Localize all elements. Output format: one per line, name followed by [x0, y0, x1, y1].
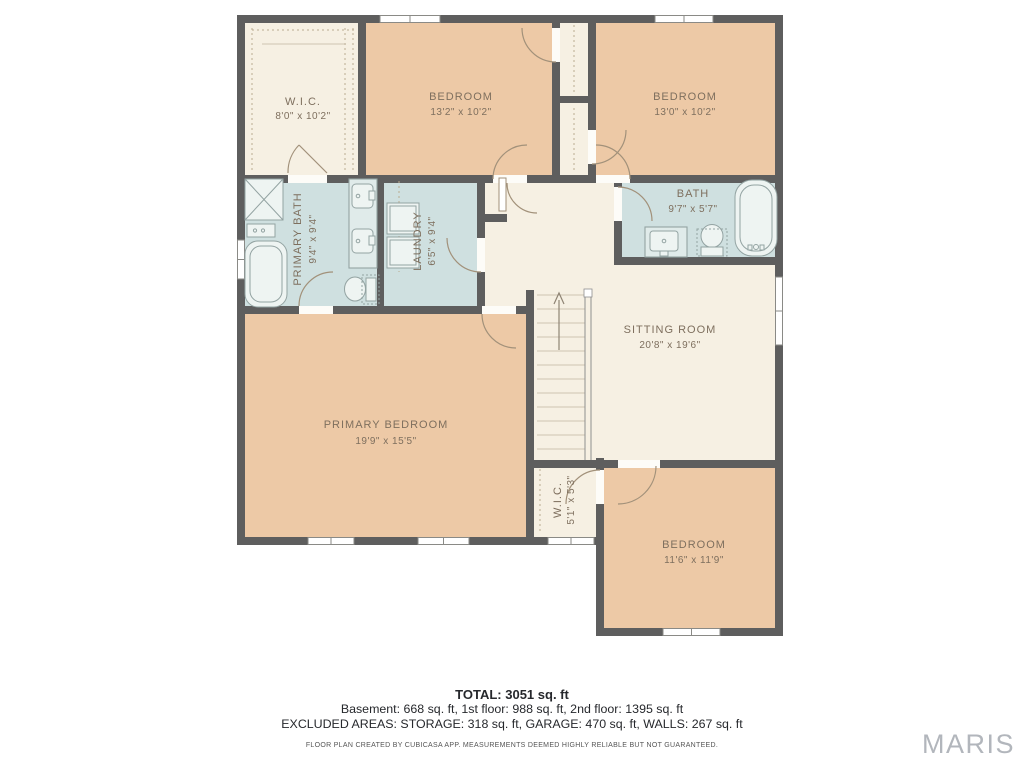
room-name: LAUNDRY [412, 211, 424, 270]
room-name: BEDROOM [653, 91, 717, 103]
window [776, 277, 783, 345]
room-dims: 9'4" x 9'4" [308, 214, 319, 263]
room-name: PRIMARY BATH [292, 192, 304, 285]
bathtub-icon [735, 180, 777, 256]
sink-icon [645, 227, 687, 257]
room-dims: 6'5" x 9'4" [427, 216, 438, 265]
room-name: BEDROOM [662, 539, 726, 551]
floor-plan-page: W.I.C. 8'0" x 10'2" BEDROOM 13'2" x 10'2… [0, 0, 1024, 768]
window [655, 16, 713, 23]
room-name: SITTING ROOM [624, 324, 717, 336]
room-dims: 5'1" x 5'3" [566, 475, 577, 524]
disclaimer-text: FLOOR PLAN CREATED BY CUBICASA APP. MEAS… [0, 742, 1024, 749]
floor-plan: W.I.C. 8'0" x 10'2" BEDROOM 13'2" x 10'2… [0, 0, 1024, 768]
toilet-icon [697, 225, 727, 257]
window [663, 629, 720, 636]
window [238, 240, 245, 279]
room-dims: 9'7" x 5'7" [668, 204, 717, 215]
shower-icon [245, 179, 283, 220]
room-name: W.I.C. [552, 482, 564, 518]
double-vanity-icon [349, 179, 377, 268]
room-name: BATH [677, 188, 710, 200]
window [308, 538, 354, 545]
bathtub-icon [245, 241, 287, 307]
sink-icon [247, 224, 275, 237]
floor-areas: Basement: 668 sq. ft, 1st floor: 988 sq.… [0, 702, 1024, 717]
room-dims: 11'6" x 11'9" [664, 555, 724, 566]
room-dims: 8'0" x 10'2" [275, 111, 330, 122]
maris-watermark: MARIS [922, 729, 1015, 760]
room-dims: 13'0" x 10'2" [654, 107, 715, 118]
window [380, 16, 440, 23]
room-dims: 19'9" x 15'5" [355, 436, 416, 447]
room-name: PRIMARY BEDROOM [324, 419, 449, 431]
room-dims: 20'8" x 19'6" [639, 340, 700, 351]
area-summary: TOTAL: 3051 sq. ft Basement: 668 sq. ft,… [0, 687, 1024, 732]
excluded-areas: EXCLUDED AREAS: STORAGE: 318 sq. ft, GAR… [0, 717, 1024, 732]
room-name: BEDROOM [429, 91, 493, 103]
room-dims: 13'2" x 10'2" [430, 107, 491, 118]
total-area: TOTAL: 3051 sq. ft [0, 687, 1024, 702]
window [548, 538, 594, 545]
room-name: W.I.C. [285, 96, 321, 108]
window [418, 538, 469, 545]
